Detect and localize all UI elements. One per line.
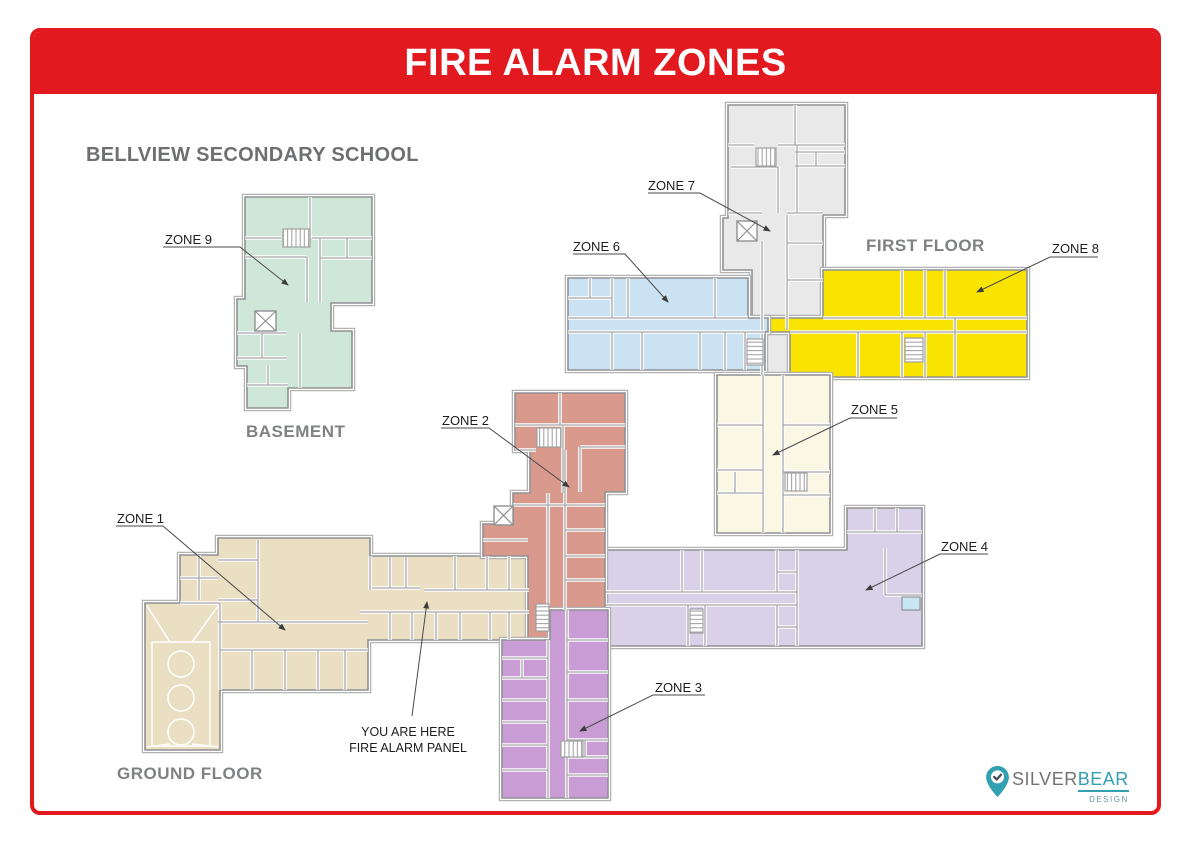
elevator-symbol bbox=[494, 506, 513, 525]
map-pin-icon bbox=[986, 766, 1009, 797]
stairs-symbol bbox=[536, 604, 549, 631]
zone-6-label: ZONE 6 bbox=[573, 239, 620, 254]
zone-9-label: ZONE 9 bbox=[165, 232, 212, 247]
zone-3-label: ZONE 3 bbox=[655, 680, 702, 695]
zone-6-area bbox=[568, 278, 768, 370]
zone-4-label: ZONE 4 bbox=[941, 539, 988, 554]
basement-plan: BASEMENT ZONE 9 bbox=[163, 197, 372, 441]
stairs-symbol bbox=[561, 741, 583, 757]
basement-label: BASEMENT bbox=[246, 422, 346, 441]
stairs-symbol bbox=[756, 148, 776, 166]
zone-5-label: ZONE 5 bbox=[851, 402, 898, 417]
logo-silver-text: SILVER bbox=[1012, 769, 1078, 789]
floor-plan-canvas: BASEMENT ZONE 9 FIRST bbox=[0, 0, 1191, 842]
first-floor-label: FIRST FLOOR bbox=[866, 236, 985, 255]
zone-8-label: ZONE 8 bbox=[1052, 241, 1099, 256]
zone-1-label: ZONE 1 bbox=[117, 511, 164, 526]
fire-alarm-panel-label: FIRE ALARM PANEL bbox=[349, 741, 467, 755]
zone-7-label: ZONE 7 bbox=[648, 178, 695, 193]
zone-5-area bbox=[717, 375, 830, 533]
logo-design-text: DESIGN bbox=[1089, 789, 1129, 811]
stairs-symbol bbox=[537, 428, 561, 447]
stairs-symbol bbox=[905, 338, 923, 362]
stairs-symbol bbox=[283, 229, 310, 247]
pool-symbol bbox=[902, 597, 920, 610]
logo-wordmark: SILVERBEAR DESIGN bbox=[1012, 766, 1129, 790]
first-floor-plan: FIRST FLOOR ZONE 7 ZONE 6 ZONE 8 ZONE 5 bbox=[568, 105, 1099, 533]
stairs-symbol bbox=[785, 473, 807, 491]
you-are-here-label: YOU ARE HERE bbox=[361, 725, 455, 739]
silverbear-logo: SILVERBEAR DESIGN bbox=[986, 766, 1129, 797]
zone-1-area bbox=[145, 538, 529, 750]
ground-floor-plan: GROUND FLOOR ZONE 1 ZONE 2 ZONE 3 ZONE 4… bbox=[116, 393, 988, 798]
elevator-symbol bbox=[255, 311, 276, 331]
stairs-symbol bbox=[747, 339, 763, 365]
ground-floor-label: GROUND FLOOR bbox=[117, 764, 263, 783]
zone-2-label: ZONE 2 bbox=[442, 413, 489, 428]
elevator-symbol bbox=[737, 221, 757, 241]
stairs-symbol bbox=[690, 609, 703, 633]
